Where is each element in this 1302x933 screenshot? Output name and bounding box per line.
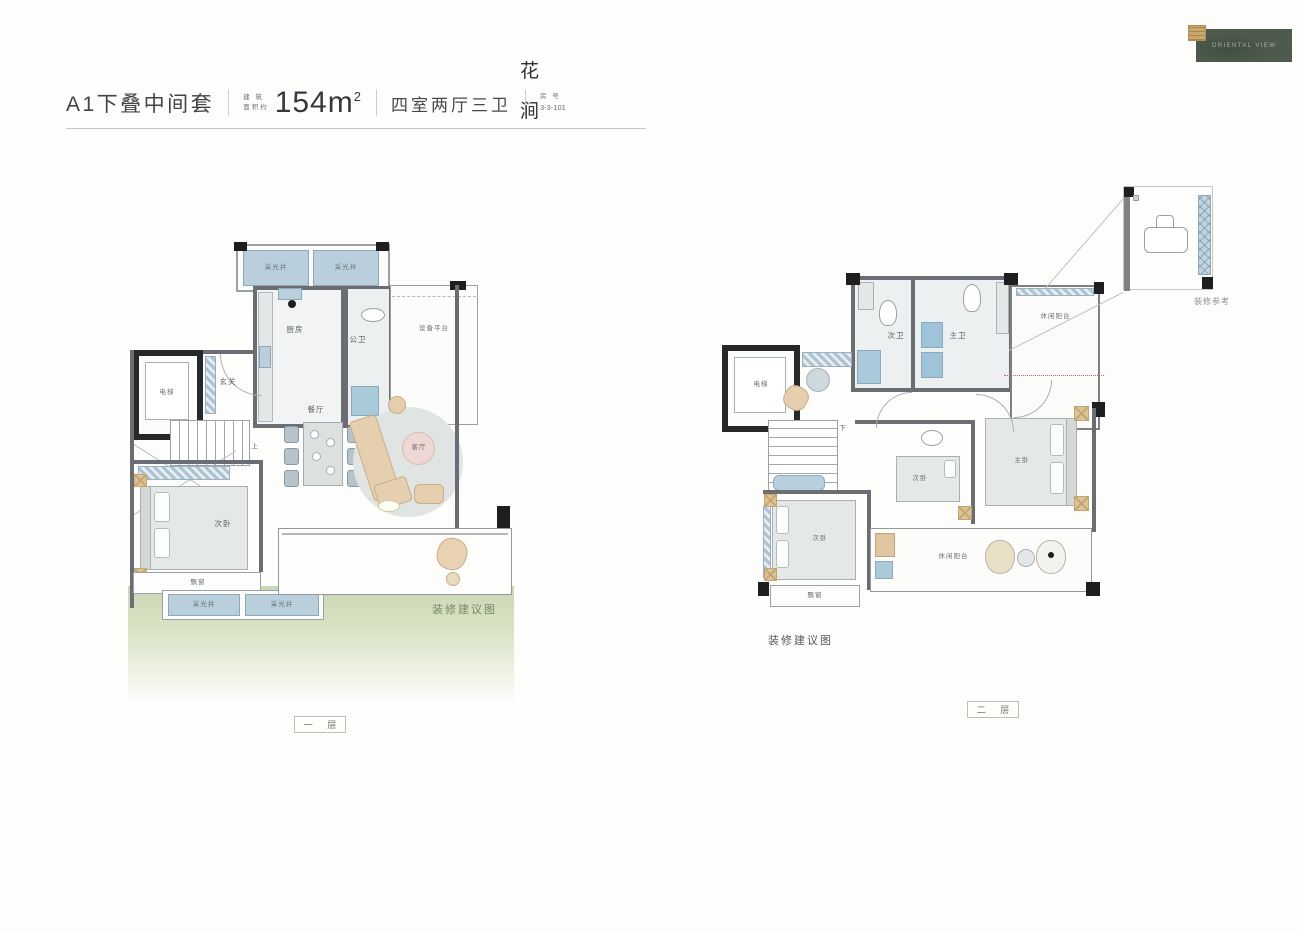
bedroom-door-arc [876, 392, 912, 428]
header-rule [66, 128, 646, 129]
area-prefix: 建 筑 面积约 [243, 93, 269, 113]
room-label: 飘窗 [790, 593, 840, 600]
page-title: A1下叠中间套 [66, 88, 214, 118]
room-label: 采光井 [252, 602, 312, 609]
room-label: 电梯 [736, 382, 786, 389]
terrace-pouf [446, 572, 460, 586]
floor2-caption: 装修建议图 [768, 632, 833, 648]
dining-plate [312, 452, 321, 461]
wall-column [846, 273, 860, 285]
bath-cabinet [996, 282, 1009, 334]
floor1-tag: 一 层 [294, 716, 346, 733]
bed-pillow [154, 528, 170, 558]
brand-logo: ORIENTAL VIEW [1196, 29, 1292, 62]
bed-pillow [776, 540, 789, 568]
logo-wordmark: ORIENTAL VIEW [1212, 43, 1277, 49]
shower-tray [857, 350, 881, 384]
nightstand [1074, 496, 1089, 511]
nightstand [958, 506, 972, 520]
inset-left-wall [1124, 187, 1130, 291]
toilet [361, 308, 385, 322]
room-label: 厨房 [270, 326, 320, 334]
vanity [858, 282, 874, 310]
entry-window [802, 352, 852, 367]
floor1-terrace [278, 528, 512, 595]
dining-plate [326, 438, 335, 447]
kitchen-window [278, 288, 302, 300]
unit-label: 房 号 [540, 92, 566, 102]
bed-headboard [140, 486, 151, 570]
bed-headboard [1066, 418, 1077, 506]
bed-pillow [944, 460, 956, 478]
wall-column [758, 582, 769, 596]
bed-pillow [1050, 462, 1064, 494]
equipment-dash-line [392, 296, 476, 297]
dining-chair [284, 470, 299, 487]
header-divider [376, 90, 377, 116]
master-door-arc [976, 394, 1014, 432]
stairs-direction: 下 [836, 426, 850, 433]
room-label: 休闲阳台 [1018, 314, 1093, 321]
stairs-direction: 上 [248, 444, 262, 451]
dining-chair [284, 426, 299, 443]
room-label: 主卫 [938, 332, 978, 340]
header: A1下叠中间套 建 筑 面积约 154m2 四室两厅三卫 房 号 3-3-101 [66, 80, 566, 126]
brand-char-1: 花 [520, 56, 539, 83]
floor2-plan: 次卫 主卫 休闲阳台 电梯 下 次卧 主卧 次卧 [718, 268, 1118, 613]
shower-tray [351, 386, 379, 416]
bed-pillow [776, 506, 789, 534]
room-label: 主卧 [1002, 458, 1042, 465]
nightstand [764, 568, 777, 581]
brand-vertical-name: 花 涧 [520, 56, 539, 123]
inset-detail [1123, 186, 1213, 290]
master-right-wall [1092, 408, 1096, 532]
room-label: 次卧 [900, 476, 940, 483]
inset-window-lattice [1198, 195, 1211, 275]
entry-door-arc [220, 354, 262, 396]
wall-column [1094, 282, 1104, 294]
wall-column [1004, 273, 1018, 285]
area-prefix-line2: 面积约 [243, 103, 269, 113]
dining-table [303, 422, 343, 486]
stool [388, 396, 406, 414]
bed-pillow [154, 492, 170, 522]
chair-cushion-dot [1048, 552, 1054, 558]
midbath-top-wall [855, 420, 975, 424]
area-number: 154m [275, 86, 354, 119]
room-label: 飘窗 [173, 580, 223, 587]
wall-column [497, 506, 510, 528]
inset-corner-mark [1133, 195, 1139, 201]
shower-tray [921, 352, 943, 378]
toilet [963, 284, 981, 312]
unit-number: 3-3-101 [540, 102, 566, 114]
ottoman [378, 500, 400, 512]
dining-chair [284, 448, 299, 465]
bed-pillow [1050, 424, 1064, 456]
room-label: 采光井 [316, 265, 376, 272]
wall-column [1086, 582, 1100, 596]
terrace-door-track [282, 533, 508, 535]
room-label: 次卧 [198, 520, 248, 528]
room-label: 玄关 [206, 378, 250, 386]
brand-char-2: 涧 [520, 96, 539, 123]
outer-wall-right [455, 285, 459, 530]
dining-plate [326, 466, 335, 475]
room-label: 电梯 [142, 390, 192, 397]
bedroom-bl-top-wall [763, 490, 871, 494]
stair-mat [773, 475, 825, 491]
room-label: 休闲阳台 [916, 554, 991, 561]
laundry-cabinet [875, 533, 895, 557]
laundry-sink [875, 561, 893, 579]
washer-knob [1156, 215, 1174, 228]
seal-icon [1188, 25, 1206, 41]
nightstand [764, 494, 777, 507]
room-label: 次卫 [876, 332, 916, 340]
foyer-rug [806, 368, 830, 392]
floor1-plan: 采光井 采光井 厨房 公卫 设备平台 电梯 玄关 上 次卧 飘窗 采光井 采 [128, 238, 514, 708]
kitchen-stove-dot [288, 300, 296, 308]
toilet [921, 430, 943, 446]
room-label: 次卧 [800, 536, 840, 543]
armchair [414, 484, 444, 504]
room-label: 公卫 [333, 336, 383, 344]
header-divider [228, 90, 229, 116]
unit-group: 房 号 3-3-101 [540, 92, 566, 114]
room-label: 采光井 [174, 602, 234, 609]
wall-column [234, 242, 247, 251]
area-value: 154m2 [275, 86, 362, 120]
bedroom-window-band [138, 466, 230, 480]
dining-plate [310, 430, 319, 439]
bedroom-right-wall [259, 460, 263, 572]
wall-column [376, 242, 389, 251]
inset-caption: 装修参考 [1186, 298, 1238, 306]
side-table [1017, 549, 1035, 567]
area-superscript: 2 [354, 89, 362, 104]
area-group: 建 筑 面积约 154m2 [243, 86, 362, 120]
wall-column [1202, 277, 1213, 289]
nightstand [1074, 406, 1089, 421]
nightstand [134, 474, 147, 487]
area-prefix-line1: 建 筑 [243, 93, 269, 103]
room-label: 客厅 [404, 445, 434, 452]
boundary-dotted-line [1004, 375, 1104, 376]
washer-detail [1144, 227, 1188, 253]
toilet [879, 300, 897, 326]
balcony-window-band [1016, 288, 1094, 296]
room-label: 餐厅 [291, 406, 341, 414]
floor2-tag: 二 层 [967, 701, 1019, 718]
room-label: 采光井 [246, 265, 306, 272]
bedroom-top-wall [130, 460, 263, 464]
layout-text: 四室两厅三卫 [391, 91, 511, 116]
